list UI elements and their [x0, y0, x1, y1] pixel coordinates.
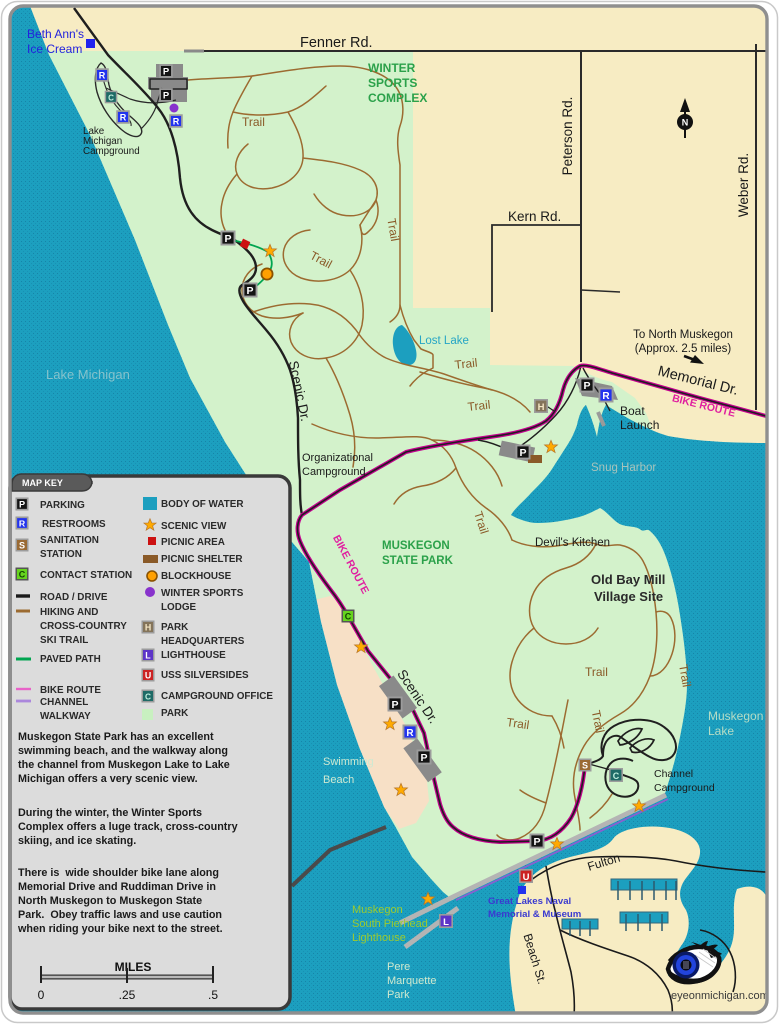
svg-text:Campground: Campground	[83, 146, 140, 157]
svg-text:USS SILVERSIDES: USS SILVERSIDES	[161, 670, 249, 681]
svg-text:Trail: Trail	[585, 665, 608, 679]
svg-text:BODY OF WATER: BODY OF WATER	[161, 499, 243, 510]
svg-text:RESTROOMS: RESTROOMS	[42, 519, 106, 530]
svg-text:Lake: Lake	[708, 724, 734, 738]
svg-text:.5: .5	[208, 988, 218, 1002]
svg-text:PAVED PATH: PAVED PATH	[40, 654, 101, 665]
svg-text:Old Bay Mill: Old Bay Mill	[591, 572, 665, 587]
svg-text:Village Site: Village Site	[594, 589, 663, 604]
svg-text:Pere: Pere	[387, 961, 410, 973]
svg-text:Park: Park	[387, 989, 410, 1001]
svg-text:Muskegon State Park has an exc: Muskegon State Park has an excellent	[18, 731, 214, 743]
svg-text:Kern Rd.: Kern Rd.	[508, 209, 561, 224]
svg-text:Beach: Beach	[323, 774, 354, 786]
svg-text:COMPLEX: COMPLEX	[368, 91, 427, 105]
svg-text:Campground: Campground	[654, 782, 715, 794]
svg-text:Park. Obey traffic laws and u: Park. Obey traffic laws and use caution	[18, 909, 222, 921]
svg-text:WINTER: WINTER	[368, 61, 416, 75]
svg-text:Channel: Channel	[654, 768, 693, 780]
svg-text:Boat: Boat	[620, 404, 645, 418]
svg-text:.25: .25	[119, 988, 136, 1002]
svg-text:During the winter, the Winter: During the winter, the Winter Sports	[18, 807, 202, 819]
svg-text:SPORTS: SPORTS	[368, 76, 417, 90]
svg-text:Trail: Trail	[467, 398, 491, 414]
svg-text:LODGE: LODGE	[161, 602, 197, 613]
svg-text:Campground: Campground	[302, 466, 366, 478]
svg-text:STATION: STATION	[40, 549, 82, 560]
svg-text:Memorial Drive and Ruddiman Dr: Memorial Drive and Ruddiman Drive in	[18, 881, 216, 893]
svg-text:BIKE ROUTE: BIKE ROUTE	[40, 685, 101, 696]
svg-text:0: 0	[38, 988, 45, 1002]
svg-text:LIGHTHOUSE: LIGHTHOUSE	[161, 650, 226, 661]
svg-text:Beth Ann's: Beth Ann's	[27, 27, 84, 41]
svg-text:CONTACT STATION: CONTACT STATION	[40, 570, 132, 581]
svg-text:To North Muskegon: To North Muskegon	[633, 329, 733, 341]
svg-text:the channel from Muskegon Lake: the channel from Muskegon Lake to Lake	[18, 759, 230, 771]
svg-text:MILES: MILES	[115, 960, 152, 974]
svg-text:CAMPGROUND OFFICE: CAMPGROUND OFFICE	[161, 691, 273, 702]
svg-text:Complex offers a luge track, c: Complex offers a luge track, cross-count…	[18, 821, 238, 833]
svg-text:PICNIC SHELTER: PICNIC SHELTER	[161, 554, 243, 565]
svg-text:SCENIC VIEW: SCENIC VIEW	[161, 521, 227, 532]
svg-text:Snug Harbor: Snug Harbor	[591, 462, 656, 474]
svg-text:BLOCKHOUSE: BLOCKHOUSE	[161, 571, 232, 582]
svg-text:swimming beach, and the walkwa: swimming beach, and the walkway along	[18, 745, 228, 757]
svg-text:There is wide shoulder bike l: There is wide shoulder bike lane along	[18, 867, 219, 879]
svg-text:SANITATION: SANITATION	[40, 535, 99, 546]
svg-text:STATE PARK: STATE PARK	[382, 555, 454, 567]
svg-text:Great Lakes Naval: Great Lakes Naval	[488, 896, 571, 907]
svg-text:Launch: Launch	[620, 418, 659, 432]
svg-text:Organizational: Organizational	[302, 452, 373, 464]
svg-text:Peterson Rd.: Peterson Rd.	[560, 97, 575, 176]
svg-text:CHANNEL: CHANNEL	[40, 697, 88, 708]
svg-text:WALKWAY: WALKWAY	[40, 711, 91, 722]
svg-text:Lighthouse: Lighthouse	[352, 932, 406, 944]
svg-text:Muskegon: Muskegon	[708, 709, 763, 723]
svg-text:MUSKEGON: MUSKEGON	[382, 540, 450, 552]
svg-text:CROSS-COUNTRY: CROSS-COUNTRY	[40, 621, 127, 632]
svg-text:PICNIC AREA: PICNIC AREA	[161, 537, 225, 548]
svg-text:Marquette: Marquette	[387, 975, 437, 987]
svg-text:eyeonmichigan.com: eyeonmichigan.com	[671, 990, 769, 1002]
svg-text:ROAD / DRIVE: ROAD / DRIVE	[40, 592, 108, 603]
svg-text:Muskegon: Muskegon	[352, 904, 403, 916]
svg-text:Trail: Trail	[454, 356, 478, 372]
svg-text:Lost Lake: Lost Lake	[419, 335, 469, 347]
svg-text:North Muskegon to Muskegon Sta: North Muskegon to Muskegon State	[18, 895, 202, 907]
svg-text:skiing, and ice skating.: skiing, and ice skating.	[18, 835, 136, 847]
svg-text:Michigan offers a very scenic: Michigan offers a very scenic view.	[18, 773, 198, 785]
svg-text:South Pierhead: South Pierhead	[352, 918, 428, 930]
svg-text:Ice Cream: Ice Cream	[27, 42, 82, 56]
svg-text:Memorial & Museum: Memorial & Museum	[488, 909, 581, 920]
svg-text:HIKING AND: HIKING AND	[40, 607, 98, 618]
svg-text:WINTER SPORTS: WINTER SPORTS	[161, 588, 244, 599]
svg-text:Trail: Trail	[242, 115, 265, 129]
svg-text:PARK: PARK	[161, 622, 189, 633]
svg-text:Devil's Kitchen: Devil's Kitchen	[535, 537, 610, 549]
svg-text:when riding your bike next to: when riding your bike next to the street…	[17, 923, 223, 935]
svg-text:MAP KEY: MAP KEY	[22, 478, 63, 488]
svg-text:N: N	[682, 117, 689, 127]
svg-text:PARKING: PARKING	[40, 500, 85, 511]
svg-text:SKI TRAIL: SKI TRAIL	[40, 635, 88, 646]
svg-text:Swimming: Swimming	[323, 756, 374, 768]
svg-text:(Approx. 2.5 miles): (Approx. 2.5 miles)	[635, 343, 732, 355]
svg-text:Lake Michigan: Lake Michigan	[46, 367, 130, 382]
svg-text:Fenner Rd.: Fenner Rd.	[300, 35, 373, 51]
svg-text:Weber Rd.: Weber Rd.	[736, 153, 751, 217]
svg-text:PARK: PARK	[161, 708, 189, 719]
svg-text:HEADQUARTERS: HEADQUARTERS	[161, 636, 245, 647]
